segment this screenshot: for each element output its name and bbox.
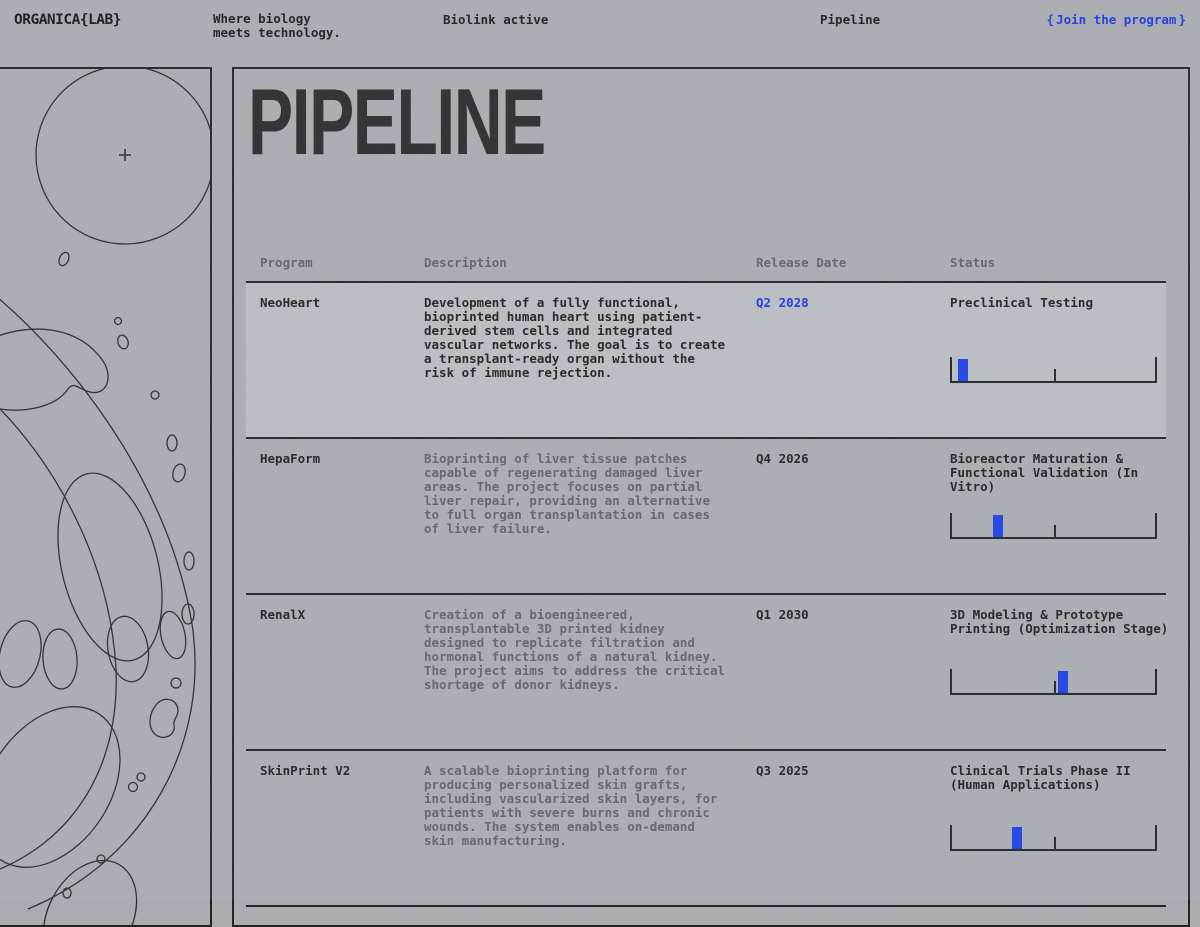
program-name: SkinPrint V2 xyxy=(260,764,424,905)
progress-gauge xyxy=(950,823,1157,851)
gauge-tick-end xyxy=(1155,825,1157,849)
gauge-tick-start xyxy=(950,825,952,849)
column-header-description: Description xyxy=(424,255,756,270)
join-program-link[interactable]: {Join the program} xyxy=(1046,12,1187,27)
release-date: Q4 2026 xyxy=(756,452,950,593)
table-row[interactable]: SkinPrint V2 A scalable bioprinting plat… xyxy=(246,751,1166,907)
cta-label: Join the program xyxy=(1055,12,1177,27)
cta-bracket-left-icon: { xyxy=(1046,12,1056,27)
page-title: PIPELINE xyxy=(248,75,925,169)
gauge-tick-start xyxy=(950,513,952,537)
status-label: Preclinical Testing xyxy=(950,296,1170,310)
progress-gauge xyxy=(950,511,1157,539)
logo[interactable]: ORGANICA{LAB} xyxy=(14,12,121,28)
release-date: Q3 2025 xyxy=(756,764,950,905)
gauge-tick-end xyxy=(1155,513,1157,537)
tagline-line-2: meets technology. xyxy=(213,26,341,40)
program-description: Creation of a bioengineered, transplanta… xyxy=(424,608,756,749)
release-date: Q1 2030 xyxy=(756,608,950,749)
column-header-program: Program xyxy=(260,255,424,270)
progress-marker xyxy=(958,359,968,381)
column-header-release-date: Release Date xyxy=(756,255,950,270)
top-navigation: ORGANICA{LAB} Where biology meets techno… xyxy=(0,0,1200,67)
status-label: 3D Modeling & Prototype Printing (Optimi… xyxy=(950,608,1170,636)
cta-bracket-right-icon: } xyxy=(1177,12,1187,27)
status-label: Bioreactor Maturation & Functional Valid… xyxy=(950,452,1170,494)
program-name: NeoHeart xyxy=(260,296,424,437)
tagline: Where biology meets technology. xyxy=(213,12,341,40)
biolink-status: Biolink active xyxy=(443,12,548,27)
table-row[interactable]: NeoHeart Development of a fully function… xyxy=(246,283,1166,439)
table-row[interactable]: HepaForm Bioprinting of liver tissue pat… xyxy=(246,439,1166,595)
program-name: RenalX xyxy=(260,608,424,749)
decorative-sidebar xyxy=(0,67,212,927)
release-date: Q2 2028 xyxy=(756,296,950,437)
plus-icon xyxy=(119,149,131,161)
gauge-tick-middle xyxy=(1054,837,1056,849)
progress-marker xyxy=(993,515,1003,537)
progress-marker xyxy=(1012,827,1022,849)
status-label: Clinical Trials Phase II (Human Applicat… xyxy=(950,764,1170,792)
organic-line-art-illustration xyxy=(0,69,210,925)
table-body: NeoHeart Development of a fully function… xyxy=(246,283,1166,907)
progress-marker xyxy=(1058,671,1068,693)
program-name: HepaForm xyxy=(260,452,424,593)
gauge-tick-middle xyxy=(1054,369,1056,381)
gauge-tick-start xyxy=(950,357,952,381)
gauge-tick-end xyxy=(1155,669,1157,693)
tagline-line-1: Where biology xyxy=(213,12,341,26)
table-header-row: Program Description Release Date Status xyxy=(246,255,1166,283)
progress-gauge xyxy=(950,667,1157,695)
table-row[interactable]: RenalX Creation of a bioengineered, tran… xyxy=(246,595,1166,751)
pipeline-table: Program Description Release Date Status … xyxy=(246,255,1166,907)
program-description: A scalable bioprinting platform for prod… xyxy=(424,764,756,905)
gauge-tick-start xyxy=(950,669,952,693)
progress-gauge xyxy=(950,355,1157,383)
pipeline-panel: PIPELINE Program Description Release Dat… xyxy=(232,67,1190,927)
program-description: Bioprinting of liver tissue patches capa… xyxy=(424,452,756,593)
column-header-status: Status xyxy=(950,255,1170,270)
gauge-tick-end xyxy=(1155,357,1157,381)
program-description: Development of a fully functional, biopr… xyxy=(424,296,756,437)
gauge-tick-middle xyxy=(1054,681,1056,693)
nav-item-pipeline[interactable]: Pipeline xyxy=(820,12,880,27)
gauge-tick-middle xyxy=(1054,525,1056,537)
